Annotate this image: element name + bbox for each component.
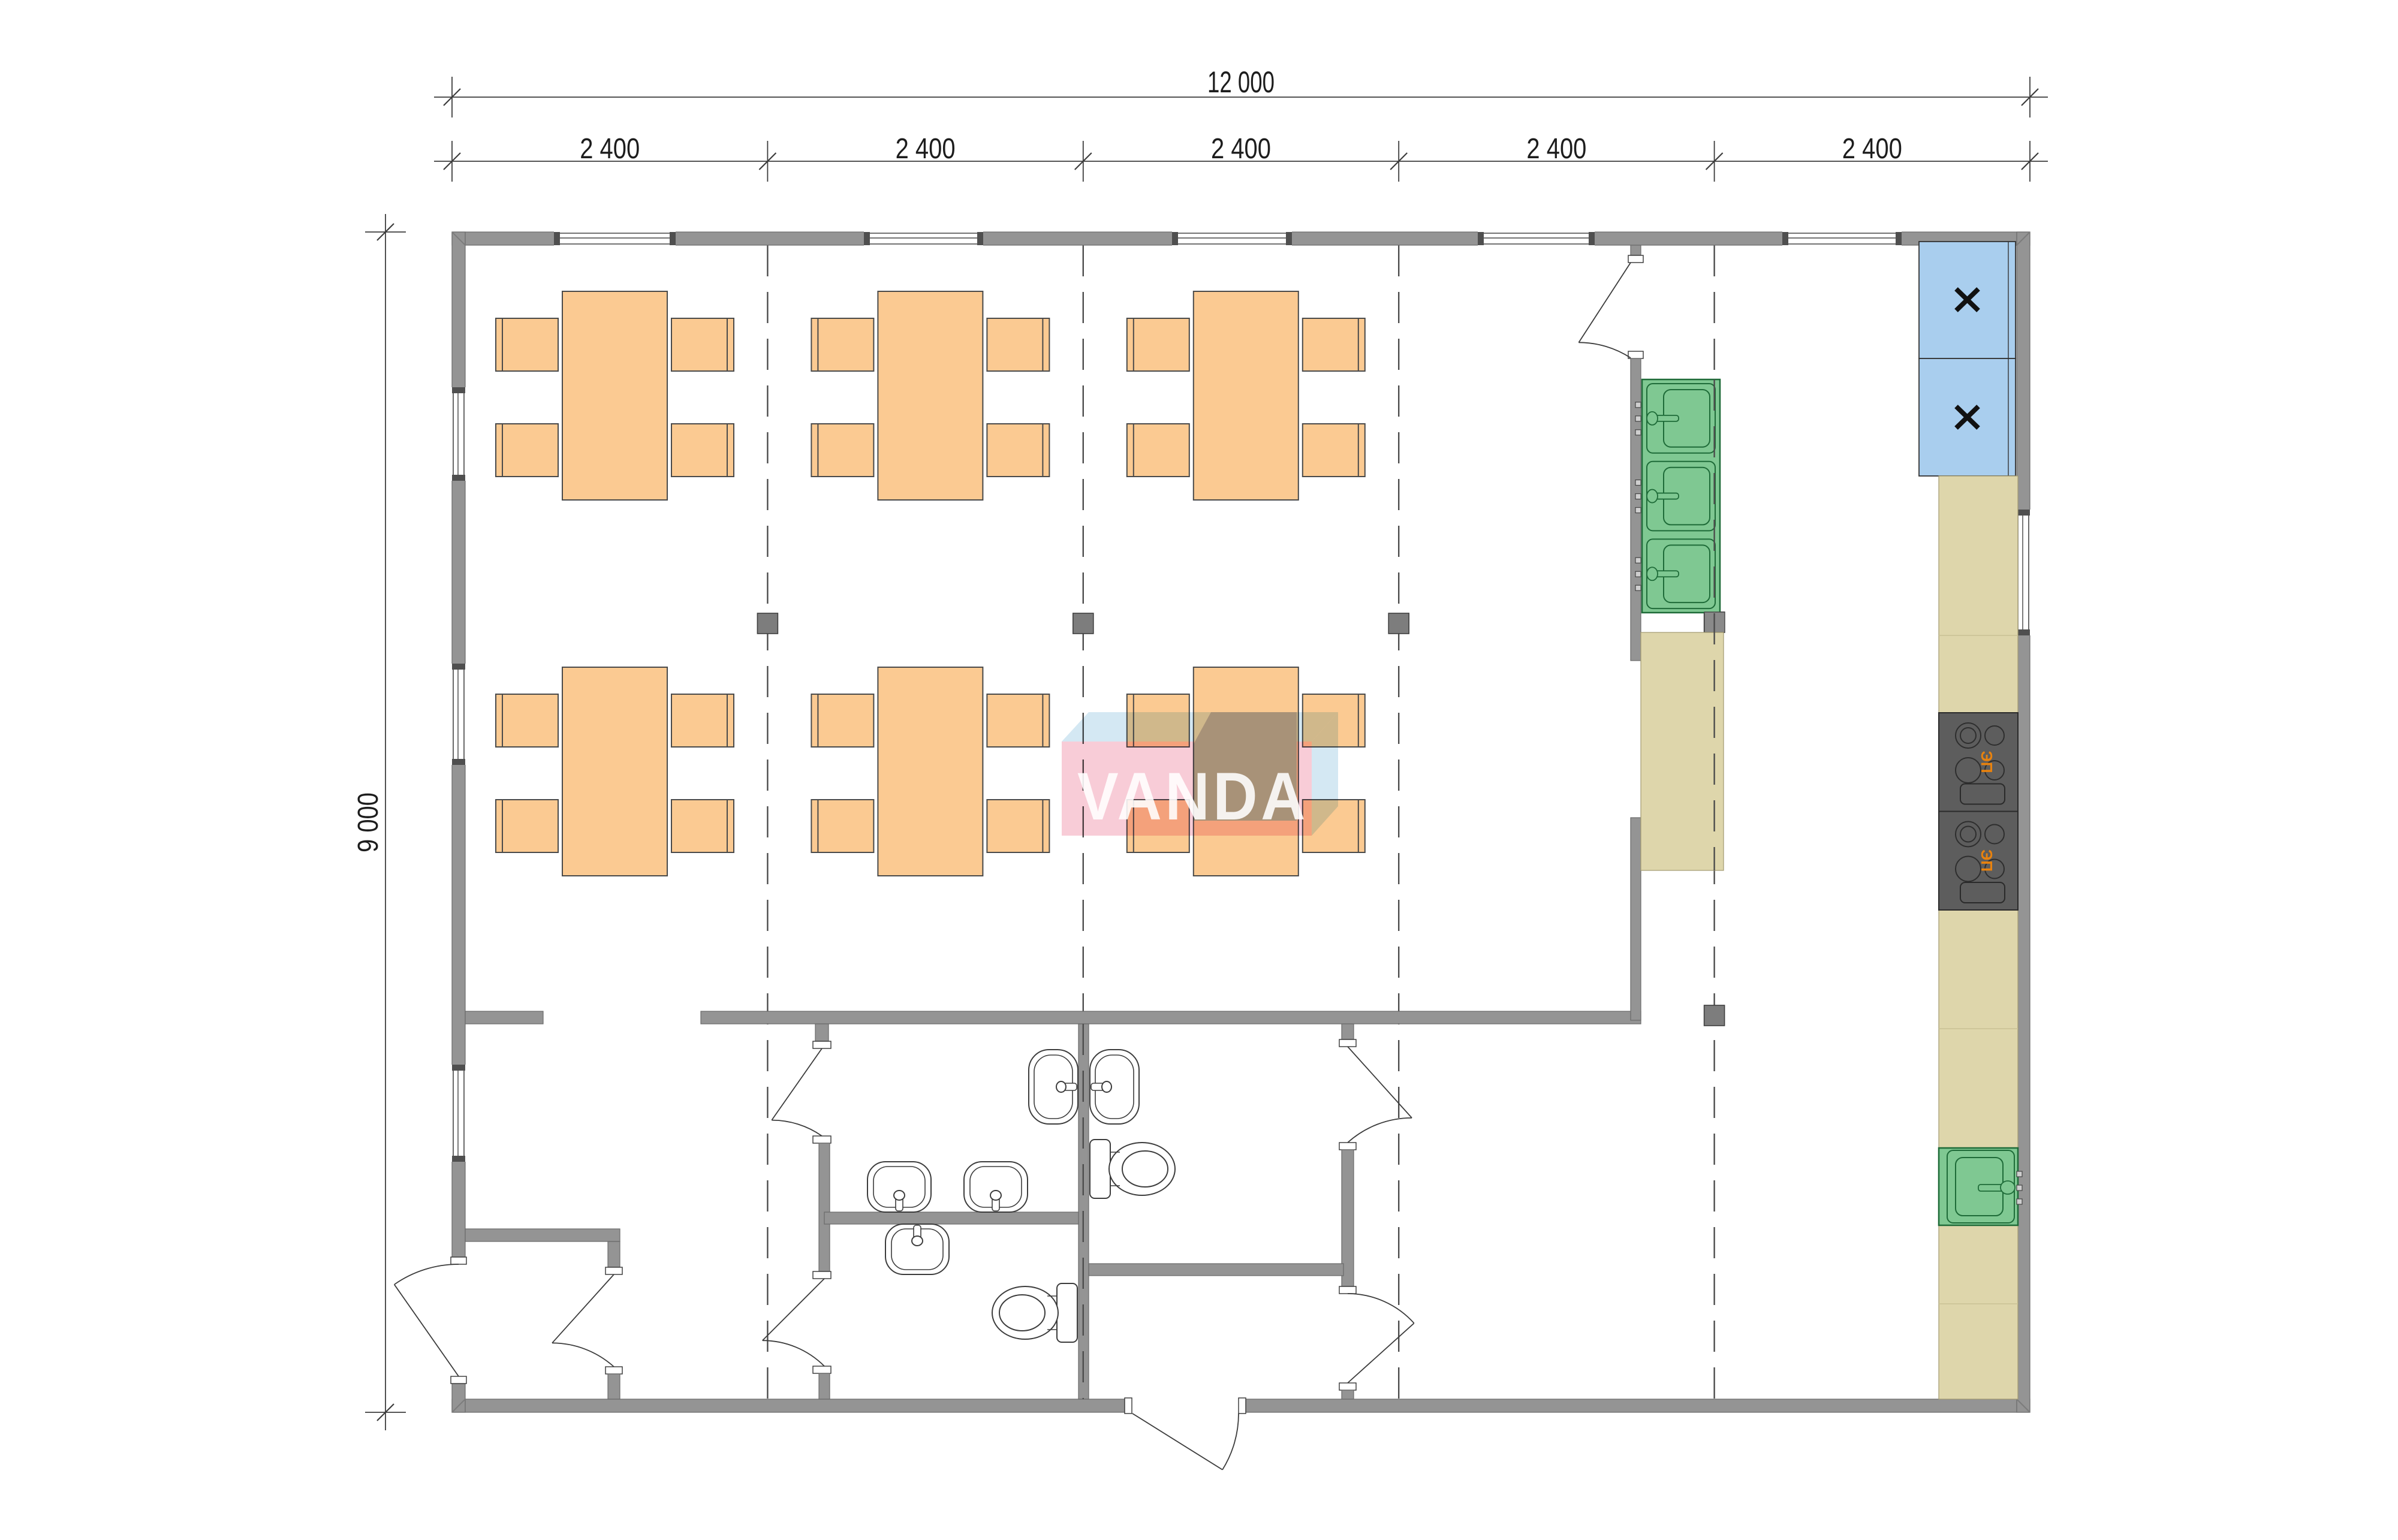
svg-text:2 400: 2 400 <box>580 133 640 165</box>
svg-text:2 400: 2 400 <box>1211 133 1271 165</box>
svg-text:ЭП: ЭП <box>1978 751 1996 773</box>
svg-text:2 400: 2 400 <box>1842 133 1902 165</box>
svg-text:ЭП: ЭП <box>1978 849 1996 872</box>
svg-text:2 400: 2 400 <box>896 133 956 165</box>
svg-text:VANDA: VANDA <box>1077 759 1309 834</box>
svg-text:2 400: 2 400 <box>1526 133 1586 165</box>
svg-text:12 000: 12 000 <box>1207 65 1275 99</box>
svg-text:9 000: 9 000 <box>353 792 384 852</box>
